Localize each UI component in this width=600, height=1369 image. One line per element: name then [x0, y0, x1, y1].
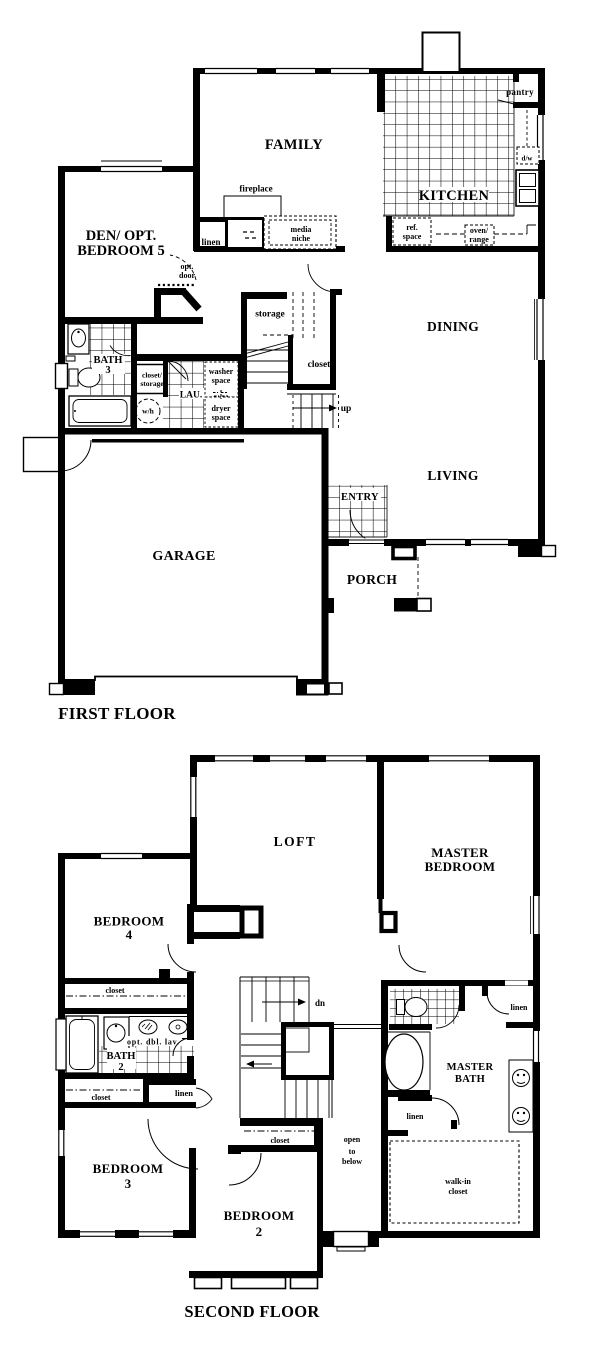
svg-text:linen: linen [201, 237, 220, 247]
svg-text:up: up [341, 404, 352, 414]
svg-text:w/h: w/h [142, 407, 155, 416]
svg-text:FAMILY: FAMILY [265, 137, 323, 153]
svg-text:KITCHEN: KITCHEN [419, 188, 490, 204]
svg-text:space: space [212, 413, 231, 422]
svg-text:linen: linen [511, 1003, 528, 1012]
svg-text:fireplace: fireplace [239, 184, 272, 194]
svg-text:range: range [469, 235, 489, 244]
svg-text:SECOND FLOOR: SECOND FLOOR [184, 1302, 320, 1321]
svg-text:linen: linen [175, 1088, 193, 1098]
svg-text:MASTER: MASTER [431, 845, 489, 860]
svg-text:door: door [179, 271, 195, 280]
svg-text:closet: closet [448, 1187, 467, 1196]
svg-text:storage: storage [140, 379, 164, 388]
svg-text:DINING: DINING [427, 319, 479, 334]
svg-text:to: to [349, 1147, 356, 1156]
svg-text:DEN/ OPT.: DEN/ OPT. [86, 228, 157, 244]
svg-text:ENTRY: ENTRY [341, 492, 379, 503]
svg-text:BEDROOM: BEDROOM [224, 1208, 295, 1223]
svg-text:BEDROOM 5: BEDROOM 5 [77, 243, 164, 259]
svg-text:dryer: dryer [211, 404, 231, 413]
svg-text:LOFT: LOFT [274, 834, 317, 849]
svg-text:closet: closet [270, 1136, 289, 1145]
svg-text:closet: closet [105, 986, 124, 995]
svg-text:storage: storage [255, 310, 285, 320]
svg-text:niche: niche [292, 234, 311, 243]
svg-text:MASTER: MASTER [447, 1062, 494, 1073]
svg-text:GARAGE: GARAGE [152, 549, 215, 564]
svg-text:below: below [342, 1157, 362, 1166]
svg-text:PORCH: PORCH [347, 572, 397, 587]
svg-text:BEDROOM: BEDROOM [425, 859, 496, 874]
svg-text:2: 2 [256, 1224, 263, 1239]
svg-text:opt. dbl. lav.: opt. dbl. lav. [127, 1038, 179, 1047]
svg-text:2: 2 [118, 1062, 123, 1073]
svg-text:3: 3 [125, 1176, 132, 1191]
svg-text:washer: washer [209, 367, 234, 376]
svg-text:media: media [291, 225, 312, 234]
svg-text:opt.: opt. [180, 262, 193, 271]
svg-text:LAU.: LAU. [180, 391, 202, 401]
svg-text:BATH: BATH [107, 1051, 136, 1062]
svg-text:dn: dn [315, 998, 325, 1008]
svg-text:LIVING: LIVING [427, 468, 479, 483]
svg-text:space: space [403, 232, 422, 241]
svg-text:oven/: oven/ [470, 226, 489, 235]
svg-text:ref.: ref. [406, 223, 418, 232]
svg-text:closet: closet [308, 360, 332, 370]
svg-text:space: space [212, 376, 231, 385]
svg-text:BEDROOM: BEDROOM [93, 1161, 164, 1176]
svg-text:3: 3 [105, 365, 110, 376]
svg-text:BATH: BATH [455, 1074, 485, 1085]
svg-text:d/w: d/w [522, 155, 534, 163]
svg-text:FIRST FLOOR: FIRST FLOOR [58, 704, 176, 723]
svg-text:walk-in: walk-in [445, 1177, 471, 1186]
svg-text:open: open [344, 1135, 361, 1144]
svg-text:closet: closet [91, 1093, 110, 1102]
svg-text:pantry: pantry [506, 87, 534, 97]
svg-text:4: 4 [126, 927, 133, 942]
svg-text:linen: linen [407, 1112, 424, 1121]
